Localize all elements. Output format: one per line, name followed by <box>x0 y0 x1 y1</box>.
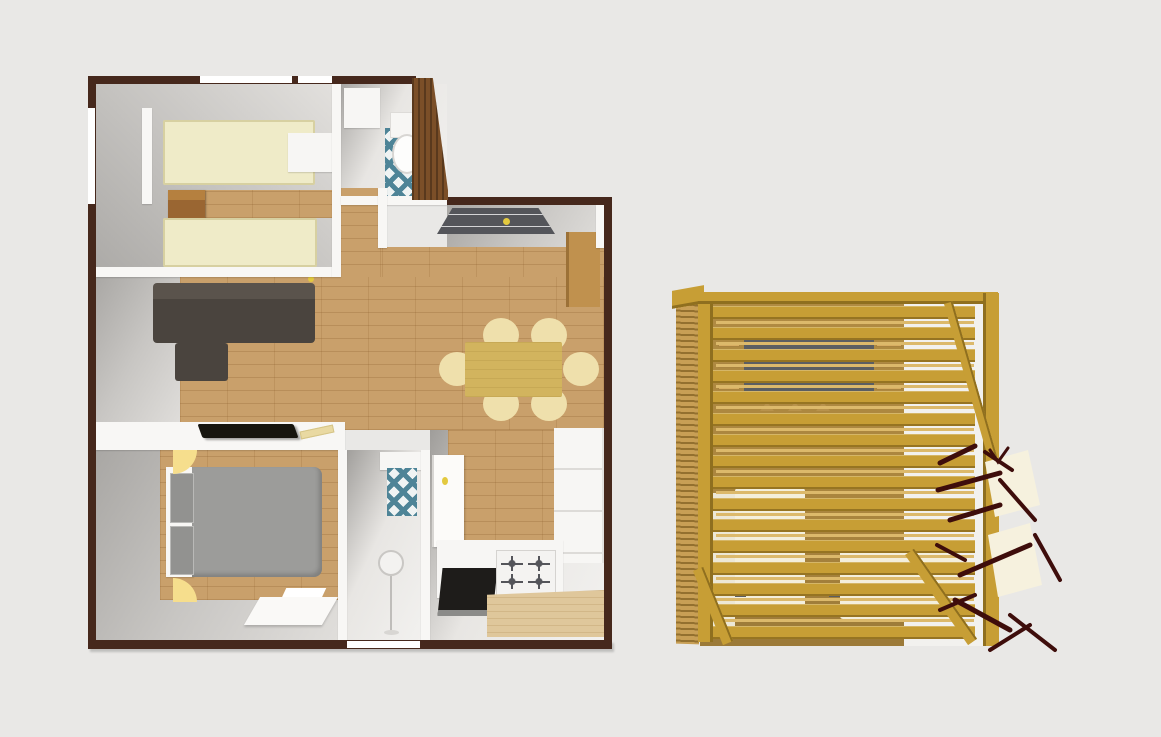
window-left <box>88 108 95 204</box>
burner <box>501 556 523 571</box>
pergola-rail <box>716 342 974 345</box>
sideboard <box>566 232 600 307</box>
wardrobe-panel <box>142 108 152 204</box>
bathroom-top-washbasin <box>344 88 380 128</box>
bathroom-bottom-tile <box>387 468 417 516</box>
wall-twinroom-bath <box>332 84 341 277</box>
burner <box>528 556 550 571</box>
corner-sofa-body <box>153 283 315 343</box>
kitchen-door <box>432 455 464 547</box>
white-rug <box>244 597 338 625</box>
pillow-1 <box>170 473 194 523</box>
pergola-rail <box>716 364 974 367</box>
bare-branches-plant <box>850 420 1110 680</box>
dining-chair <box>563 352 599 386</box>
pergola-rail <box>716 406 974 409</box>
double-bed <box>192 467 322 577</box>
fan-pole <box>390 572 392 632</box>
wall-hall-west <box>378 188 387 248</box>
wall-bedroom-bath <box>338 450 347 640</box>
wall-bath-kitchen <box>421 450 430 640</box>
pergola-rail <box>716 321 974 324</box>
flat-tv <box>197 424 298 438</box>
outer-wall-top-wing <box>447 197 612 205</box>
pergola-rail <box>716 385 974 388</box>
pergola-slat <box>713 327 975 340</box>
between-beds-floor <box>205 190 333 218</box>
floor-fan <box>378 550 404 576</box>
wall-twinroom-living <box>96 267 332 277</box>
single-bed-2 <box>163 218 317 267</box>
pergola-slat <box>713 306 975 319</box>
outer-wall-right <box>604 197 612 649</box>
wood-nightstand <box>168 190 205 218</box>
burner <box>528 574 550 589</box>
doormat-handle-dot <box>503 218 510 225</box>
corner-sofa-chaise <box>175 343 228 381</box>
gas-hob <box>497 551 555 595</box>
render-canvas <box>0 0 1161 737</box>
window-top-1 <box>200 76 292 83</box>
entrance-doormat <box>437 208 555 234</box>
window-bottom <box>347 641 420 648</box>
wood-countertop <box>487 590 604 637</box>
kitchen-door-handle <box>442 477 448 485</box>
wall-entrance-inner <box>596 205 604 248</box>
window-top-2 <box>298 76 332 83</box>
pergola-slat <box>713 391 975 404</box>
nightstand-white <box>288 133 333 172</box>
pergola-slat <box>713 370 975 383</box>
dining-table <box>465 342 562 397</box>
pergola-slat <box>713 349 975 362</box>
burner <box>501 574 523 589</box>
pergola-side-wall <box>676 300 699 645</box>
pillow-2 <box>170 526 194 575</box>
fan-base <box>384 630 399 635</box>
